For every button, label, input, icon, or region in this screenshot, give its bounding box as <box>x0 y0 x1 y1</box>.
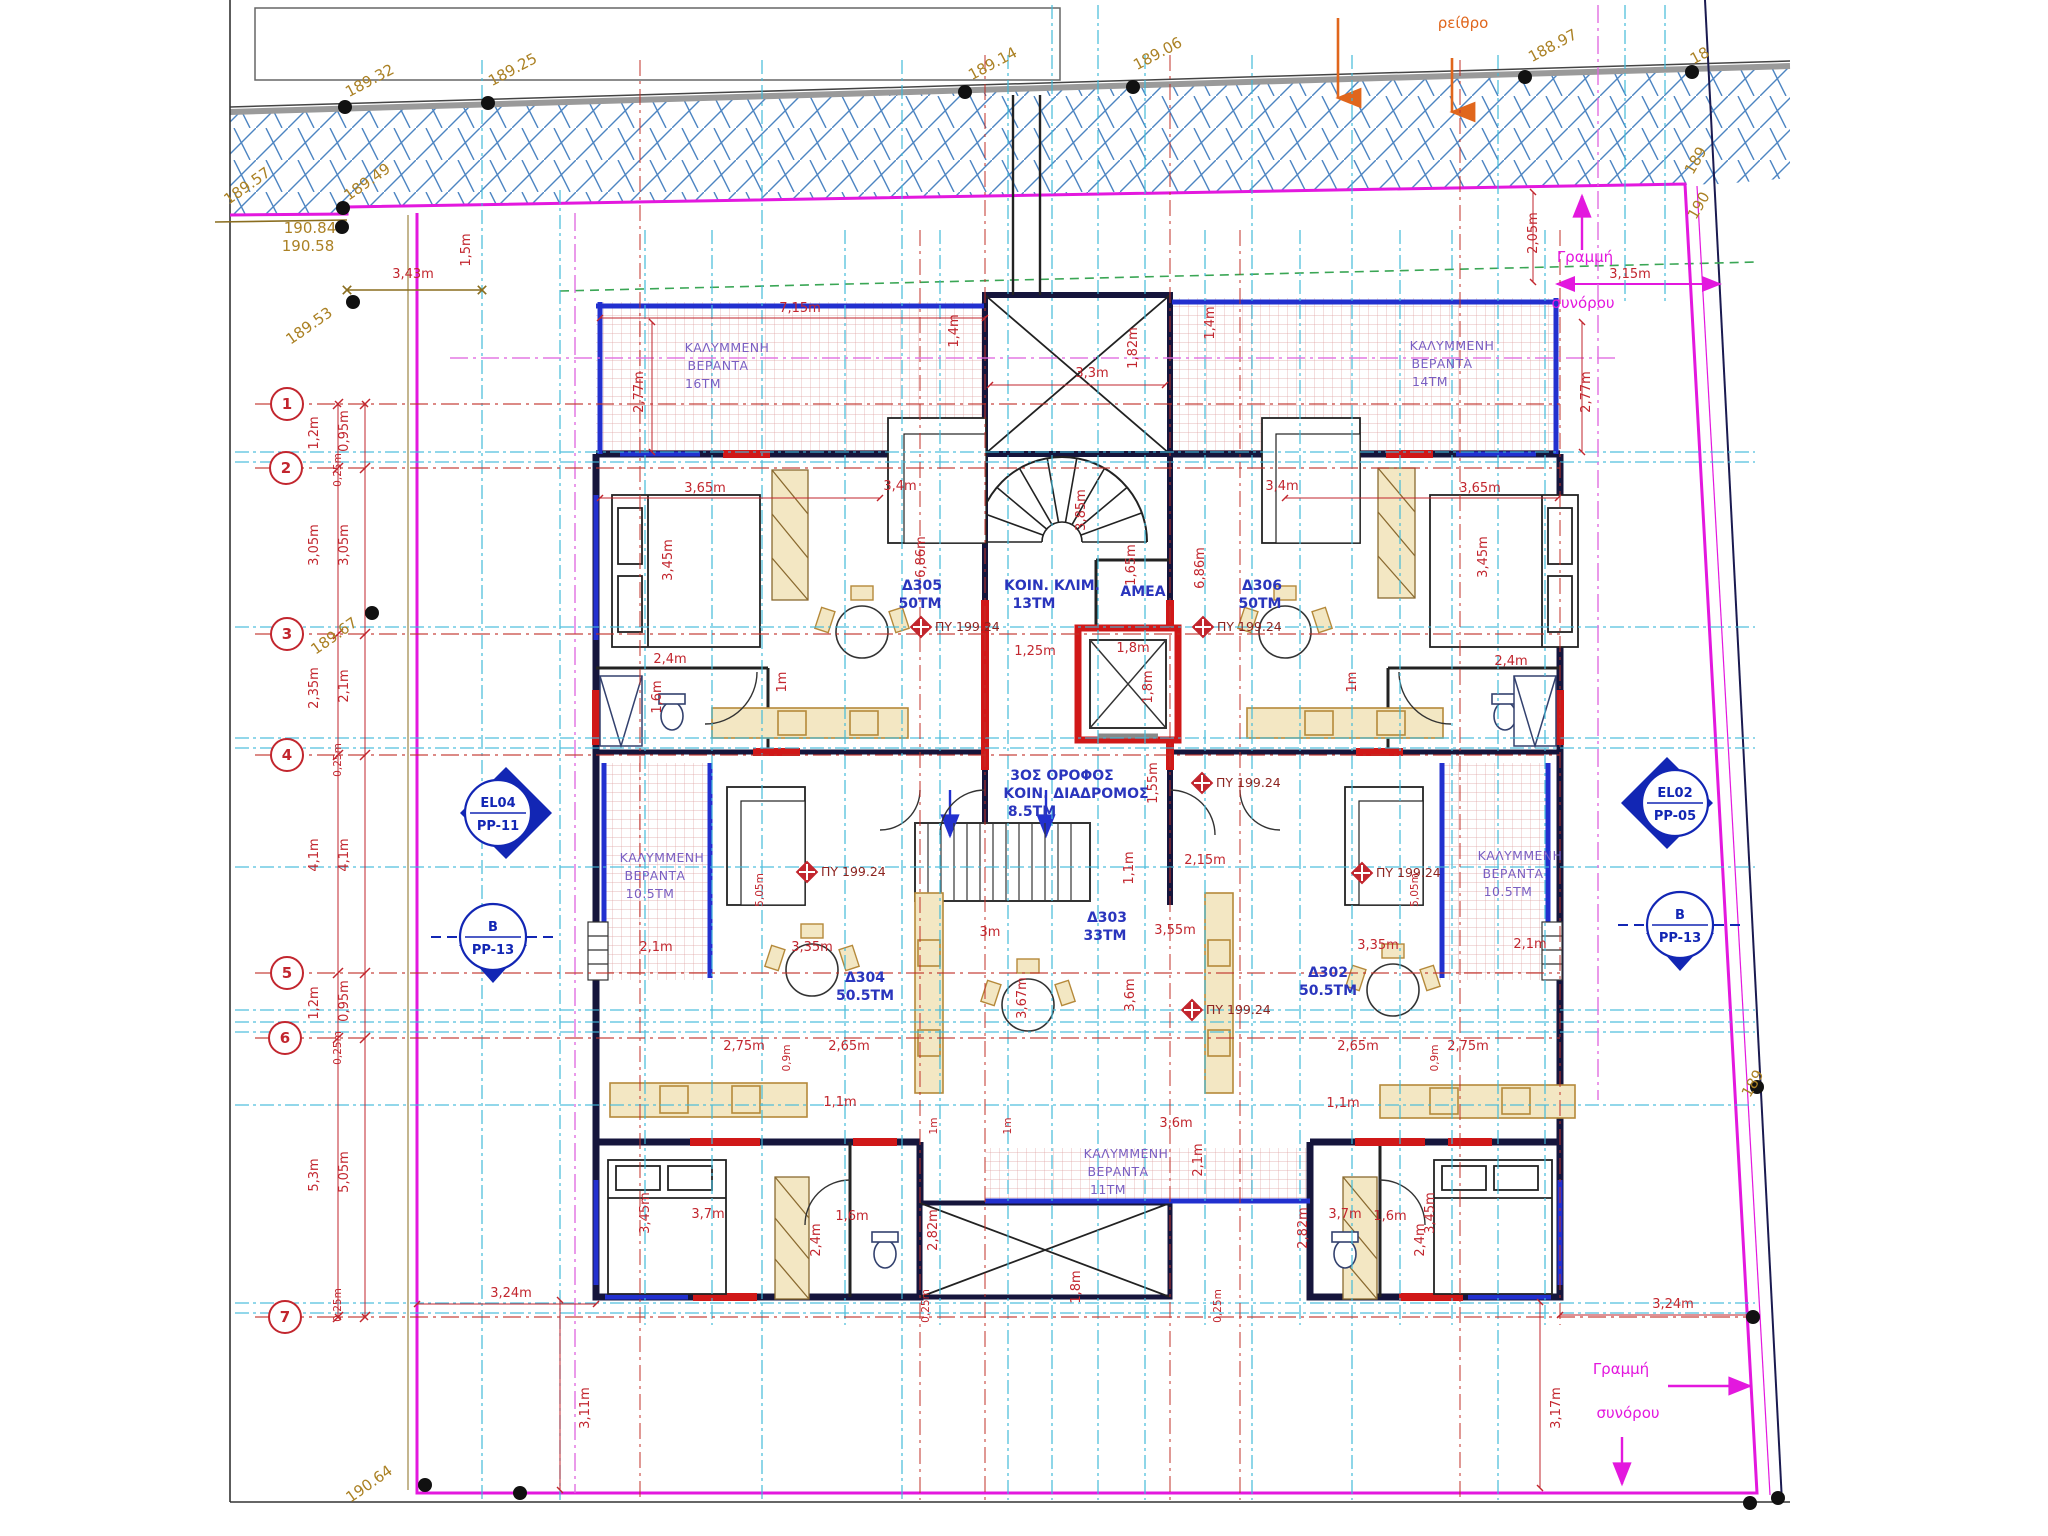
dimension-label: 3,7m <box>1328 1207 1361 1222</box>
dimension-label: 5,05m <box>337 1151 352 1193</box>
dimension-label: 1,65m <box>1124 544 1139 586</box>
dimension-label: 3,4m <box>1265 479 1298 494</box>
room-label: ΒΕΡΑΝΤΑ <box>1483 866 1544 881</box>
apartment-label: Δ302 <box>1308 965 1348 981</box>
building <box>588 95 1578 1299</box>
dimension-label: 3,15m <box>1609 267 1651 282</box>
room-label: 11ΤΜ <box>1090 1182 1126 1197</box>
dimension-label: 1,4m <box>947 314 962 347</box>
room-label: ΒΕΡΑΝΤΑ <box>688 358 749 373</box>
dimension-label: 3,4m <box>883 479 916 494</box>
room-label: 10.5ΤΜ <box>626 886 675 901</box>
dimension-label: 3,35m <box>1357 938 1399 953</box>
dimension-label: 3,55m <box>1154 923 1196 938</box>
apartment-label: 50.5ΤΜ <box>836 988 894 1004</box>
dimension-label: 1,6m <box>1373 1209 1406 1224</box>
boundary-peg <box>1126 80 1140 94</box>
dimension-label: 1,1m <box>823 1095 856 1110</box>
boundary-peg <box>1746 1310 1760 1324</box>
room-label: ΚΑΛΥΜΜΕΝΗ <box>1478 848 1563 863</box>
apartment-label: Δ306 <box>1242 578 1282 594</box>
room-label: ΚΑΛΥΜΜΕΝΗ <box>1410 338 1495 353</box>
stair-straight <box>915 790 1090 901</box>
svg-text:4: 4 <box>282 746 292 764</box>
dimension-label: 3,6m <box>1159 1116 1192 1131</box>
boundary-peg <box>481 96 495 110</box>
svg-text:3: 3 <box>282 625 292 643</box>
dimension-label: 3,45m <box>661 539 676 581</box>
dimension-label: 5,05m <box>754 873 766 907</box>
dimension-label: 1,1m <box>1326 1096 1359 1111</box>
dimension-label: 1m <box>1002 1118 1014 1135</box>
svg-text:2: 2 <box>281 459 291 477</box>
boundary-label: συνόρου <box>1596 1404 1659 1422</box>
dimension-label: 3,11m <box>578 1387 593 1429</box>
dimension-label: 3,43m <box>392 267 434 282</box>
dimension-label: 2,4m <box>1494 654 1527 669</box>
dimension-label: 7,15m <box>779 301 821 316</box>
apartment-label: ΚΟΙΝ. ΚΛΙΜ. <box>1004 578 1100 594</box>
dimension-label: 3,6m <box>1123 978 1138 1011</box>
elevation-label: 189.06 <box>1130 33 1185 74</box>
dimension-label: 0,9m <box>781 1045 793 1072</box>
dimension-label: 6,86m <box>914 536 929 578</box>
dimension-label: 2,65m <box>1337 1039 1379 1054</box>
dimension-label: 3,45m <box>638 1192 653 1234</box>
balcony-structure <box>920 1203 1170 1297</box>
dimension-label: 2,1m <box>1191 1143 1206 1176</box>
dimension-label: 3,17m <box>1549 1387 1564 1429</box>
toilet <box>1332 1232 1358 1268</box>
room-label: ΚΑΛΥΜΜΕΝΗ <box>1084 1146 1169 1161</box>
svg-text:B: B <box>1675 908 1685 923</box>
dimension-label: 3,67m <box>1015 977 1030 1019</box>
svg-text:6: 6 <box>280 1029 290 1047</box>
dimension-label: 2,82m <box>926 1209 941 1251</box>
dimension-label: 2,75m <box>723 1039 765 1054</box>
veranda-top-right <box>1172 298 1560 454</box>
dimension-label: 1m <box>928 1118 940 1135</box>
boundary-label: Γραμμή <box>1593 1360 1649 1378</box>
boundary-peg <box>958 85 972 99</box>
elevation-label: 189 <box>1738 1067 1768 1101</box>
dimension-label: 3,85m <box>1074 489 1089 531</box>
apartment-label: 13ΤΜ <box>1013 596 1056 612</box>
dimension-label: 5,05m <box>1409 873 1421 907</box>
dimension-label: 2,77m <box>1579 371 1594 413</box>
dimension-label: 3,65m <box>684 481 726 496</box>
dimension-label: 2,4m <box>653 652 686 667</box>
apartment-label: Δ304 <box>845 970 885 986</box>
dimension-label: 2,1m <box>1513 937 1546 952</box>
room-label: ΚΑΛΥΜΜΕΝΗ <box>685 340 770 355</box>
dimension-label: 6,86m <box>1193 547 1208 589</box>
dimension-label: 3,7m <box>691 1207 724 1222</box>
section-marker: EL02PP-05 <box>1621 757 1713 849</box>
boundary-peg <box>1743 1496 1757 1510</box>
dimension-label: 3,05m <box>307 524 322 566</box>
toilet <box>872 1232 898 1268</box>
dimension-label: 0,95m <box>337 980 352 1022</box>
dimension-label: 0,25m <box>1212 1289 1224 1323</box>
svg-text:PP-11: PP-11 <box>477 819 519 834</box>
boundary-peg <box>336 201 350 215</box>
dimension-label: 3,65m <box>1459 481 1501 496</box>
dimension-label: 2,1m <box>639 940 672 955</box>
elevation-label: 189.67 <box>307 613 360 658</box>
apartment-label: 50ΤΜ <box>1239 596 1282 612</box>
dimension-label: 1,2m <box>307 986 322 1019</box>
boundary-label: Γραμμή <box>1557 248 1613 266</box>
dimension-label: 3,35m <box>791 940 833 955</box>
street-band <box>230 61 1790 215</box>
room-label: ΚΑΛΥΜΜΕΝΗ <box>620 850 705 865</box>
dimension-label: 1m <box>775 672 790 693</box>
elevation-label: 188.97 <box>1525 25 1580 66</box>
dimension-label: 1,1m <box>1122 851 1137 884</box>
boundary-peg <box>335 220 349 234</box>
svg-text:7: 7 <box>280 1308 290 1326</box>
boundary-peg <box>365 606 379 620</box>
dimension-label: 0,95m <box>337 410 352 452</box>
dimension-label: 3,45m <box>1476 536 1491 578</box>
dimension-label: 0,25m <box>332 1031 344 1065</box>
apartment-label: ΑΜΕΑ <box>1120 584 1165 600</box>
setback-line <box>560 262 1757 291</box>
boundary-label: συνόρου <box>1551 294 1614 312</box>
dimension-label: 5,3m <box>307 1158 322 1191</box>
dimension-label: 4,1m <box>307 838 322 871</box>
apartment-label: 50.5ΤΜ <box>1299 983 1357 999</box>
apartment-label: 3ΟΣ ΟΡΟΦΟΣ <box>1010 768 1114 784</box>
stair-spiral <box>977 457 1147 542</box>
dimension-label: 2,77m <box>632 371 647 413</box>
dimension-label: 2,65m <box>828 1039 870 1054</box>
elevation-label: 190.58 <box>282 237 335 255</box>
apartment-label: Δ303 <box>1087 910 1127 926</box>
elevation-label: 189.53 <box>282 303 335 348</box>
dimension-label: 1,5m <box>459 233 474 266</box>
dimension-label: 2,4m <box>809 1223 824 1256</box>
dimension-label: 1m <box>1345 672 1360 693</box>
boundary-peg <box>418 1478 432 1492</box>
svg-text:B: B <box>488 920 498 935</box>
svg-text:PP-13: PP-13 <box>1659 931 1701 946</box>
dimension-label: 2,35m <box>307 667 322 709</box>
room-label: 10.5ΤΜ <box>1484 884 1533 899</box>
dimension-label: 0,25m <box>920 1289 932 1323</box>
apartment-label: ΚΟΙΝ. ΔΙΑΔΡΟΜΟΣ <box>1003 786 1148 802</box>
site-plan-svg: 1234567 EL04PP-11EL02PP-05BPP-13BPP-13 Π… <box>0 0 2048 1536</box>
dimension-label: 2,4m <box>1413 1223 1428 1256</box>
dimension-label: 1,8m <box>1069 1270 1084 1303</box>
dimension-label: 4,1m <box>337 838 352 871</box>
svg-text:PP-13: PP-13 <box>472 943 514 958</box>
survey-marker: ΠΥ 199.24 <box>1191 772 1281 795</box>
dimension-label: 3,24m <box>1652 1297 1694 1312</box>
apartment-label: 8.5ΤΜ <box>1008 804 1056 820</box>
elevation-label: 190.84 <box>284 219 337 237</box>
dimension-label: 2,1m <box>337 669 352 702</box>
floor-plan-drawing: 1234567 EL04PP-11EL02PP-05BPP-13BPP-13 Π… <box>0 0 2048 1536</box>
dimension-label: 1,6m <box>650 680 665 713</box>
boundary-peg <box>513 1486 527 1500</box>
dimension-label: 1,8m <box>1141 670 1156 703</box>
svg-text:EL04: EL04 <box>480 796 515 811</box>
dining-table <box>815 586 909 658</box>
dimension-label: 2,05m <box>1526 212 1541 254</box>
side-steps <box>588 922 1562 980</box>
svg-text:1: 1 <box>282 395 292 413</box>
dimension-label: 3,05m <box>337 524 352 566</box>
survey-label: ΠΥ 199.24 <box>935 619 1000 634</box>
dimension-label: 0,25m <box>332 743 344 777</box>
apartment-label: 33ΤΜ <box>1084 928 1127 944</box>
dimension-label: 2,75m <box>1447 1039 1489 1054</box>
dimension-label: 0,25m <box>332 1288 344 1322</box>
dimension-label: 2,15m <box>1184 853 1226 868</box>
room-label: ΒΕΡΑΝΤΑ <box>1088 1164 1149 1179</box>
survey-marker: ΠΥ 199.24 <box>796 861 886 884</box>
room-label: ΒΕΡΑΝΤΑ <box>1412 356 1473 371</box>
elevation-label: 190.64 <box>342 1461 395 1506</box>
boundary-peg <box>1518 70 1532 84</box>
dimension-label: 1,82m <box>1126 327 1141 369</box>
apartment-label: 50ΤΜ <box>899 596 942 612</box>
survey-label: ΠΥ 199.24 <box>1206 1002 1271 1017</box>
survey-label: ΠΥ 199.24 <box>1216 775 1281 790</box>
room-label: 16ΤΜ <box>685 376 721 391</box>
boundary-peg <box>338 100 352 114</box>
dimension-label: 1,2m <box>307 416 322 449</box>
dimension-label: 1,6m <box>835 1209 868 1224</box>
survey-label: ΠΥ 199.24 <box>821 864 886 879</box>
apartment-label: Δ305 <box>902 578 942 594</box>
dining-table <box>1346 944 1440 1016</box>
boundary-peg <box>1771 1491 1785 1505</box>
dimension-label: 3,3m <box>1075 366 1108 381</box>
section-marker: EL04PP-11 <box>460 767 552 859</box>
dimension-label: 3m <box>980 925 1001 940</box>
room-label: 14ΤΜ <box>1412 374 1448 389</box>
dimension-label: 1,4m <box>1203 306 1218 339</box>
boundary-peg <box>346 295 360 309</box>
section-marker: BPP-13 <box>431 904 555 983</box>
dimension-label: 1,8m <box>1116 641 1149 656</box>
svg-text:5: 5 <box>282 964 292 982</box>
dimension-label: 0,25m <box>332 453 344 487</box>
elevation-label: 189.25 <box>485 49 540 90</box>
dimension-label: 0,9m <box>1429 1045 1441 1072</box>
elevation-label: 189.14 <box>965 43 1020 84</box>
svg-text:EL02: EL02 <box>1657 786 1692 801</box>
street-label: ρείθρο <box>1438 14 1489 32</box>
survey-label: ΠΥ 199.24 <box>1217 619 1282 634</box>
svg-text:PP-05: PP-05 <box>1654 809 1696 824</box>
dimension-label: 3,24m <box>490 1286 532 1301</box>
room-label: ΒΕΡΑΝΤΑ <box>625 868 686 883</box>
dimension-label: 2,82m <box>1296 1207 1311 1249</box>
dimension-label: 1,25m <box>1014 644 1056 659</box>
